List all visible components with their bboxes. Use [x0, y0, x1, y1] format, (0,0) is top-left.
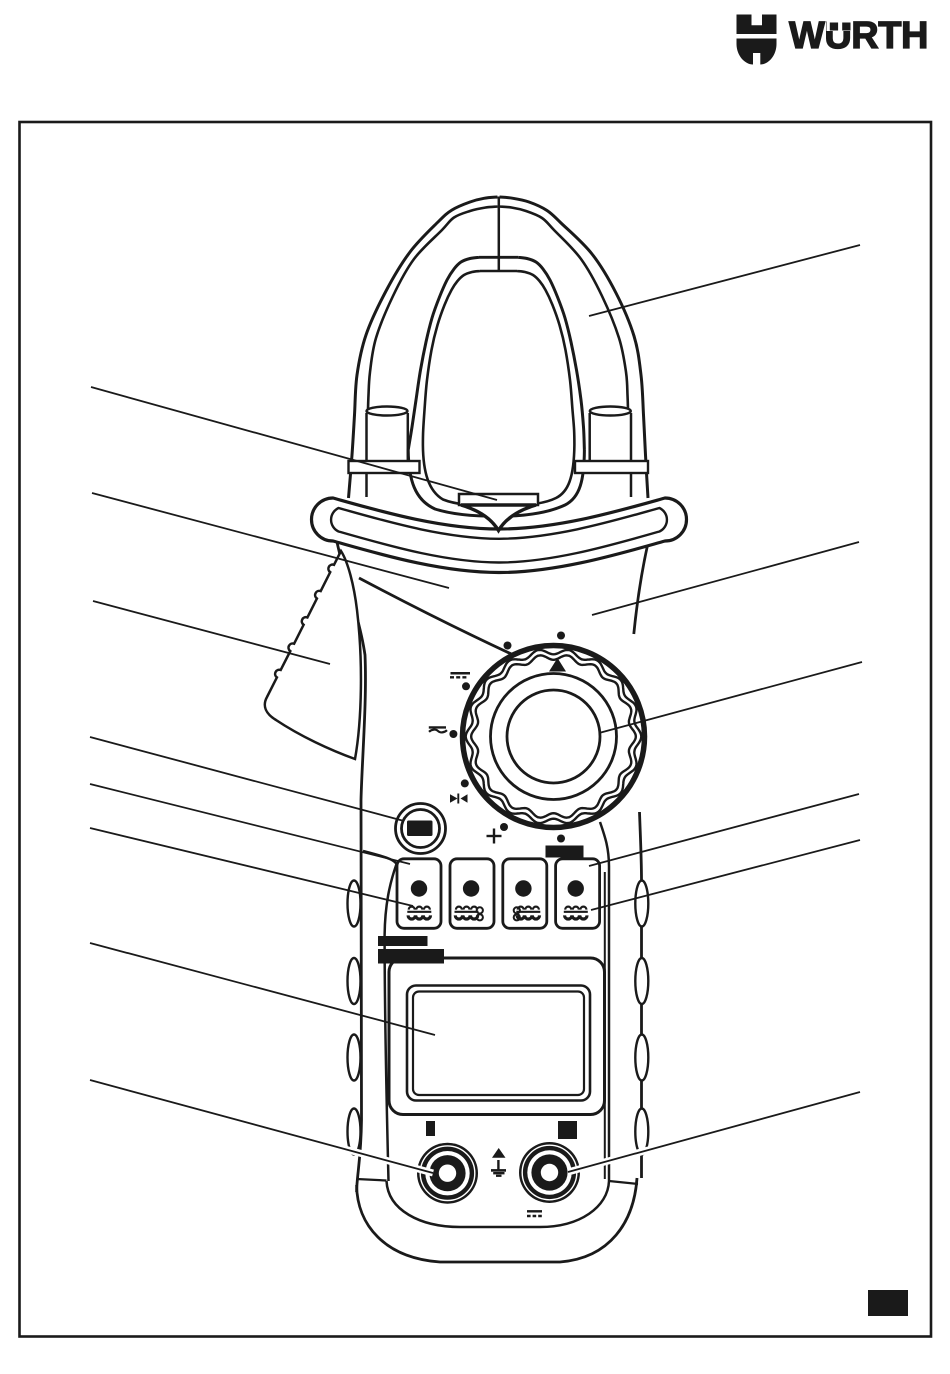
svg-text:WURTH: WURTH — [789, 15, 928, 57]
